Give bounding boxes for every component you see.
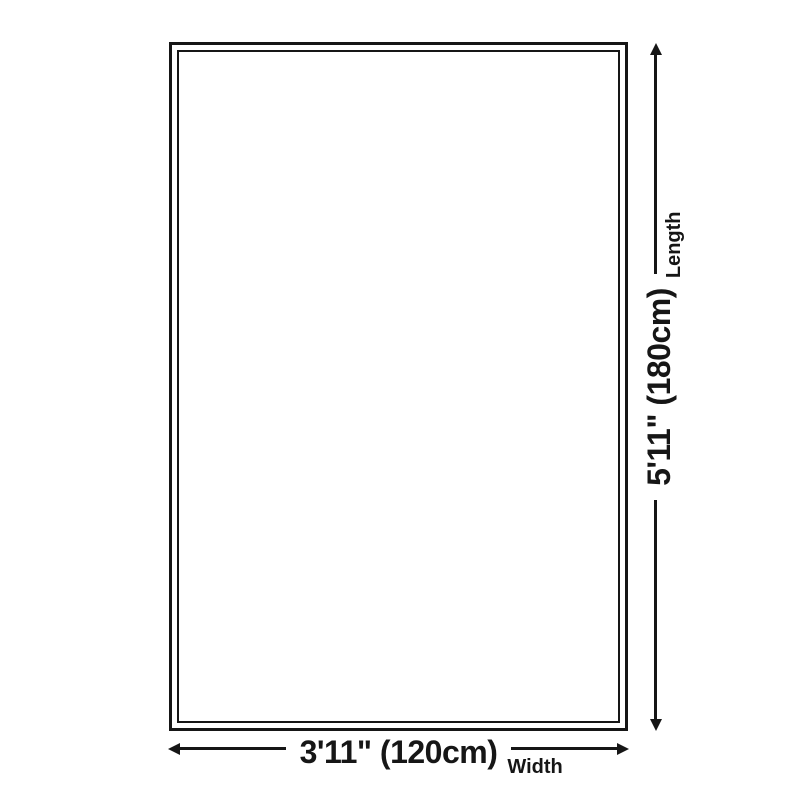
length-dimension-arrow: 5'11" (180cm) Length [643,43,689,731]
arrow-down-icon [650,719,662,731]
width-dimension-line-left [180,747,286,750]
arrow-right-icon [617,743,629,755]
width-dimension-arrow: 3'11" (120cm) Width [168,736,629,782]
product-outline [169,42,628,731]
width-value: 3'11" (120cm) [286,736,512,768]
width-dimension-line-right: Width [511,747,617,750]
arrow-left-icon [168,743,180,755]
length-dimension-line-lower [654,500,657,719]
size-diagram: 5'11" (180cm) Length 3'11" (120cm) Width [0,0,800,800]
length-dimension-line-upper: Length [654,55,657,274]
arrow-up-icon [650,43,662,55]
length-value: 5'11" (180cm) [643,274,675,500]
length-label: Length [664,211,684,278]
product-outline-inner-border [177,50,620,723]
width-label: Width [507,757,562,777]
